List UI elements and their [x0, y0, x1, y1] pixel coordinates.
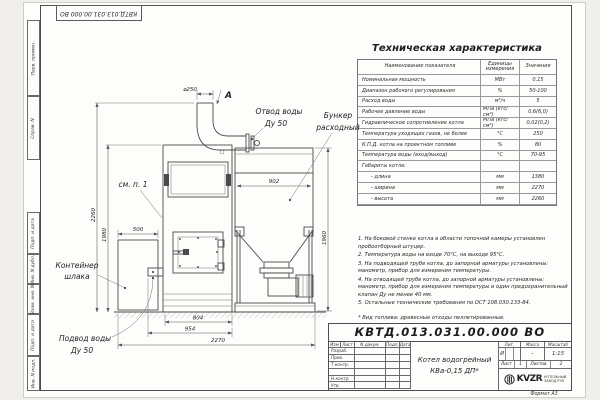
panel-inner	[171, 165, 225, 194]
slag-container-leader	[98, 275, 125, 288]
valve-flange	[246, 134, 249, 152]
tech-row-unit: МВт	[481, 75, 520, 86]
bunker-leader	[290, 133, 332, 200]
doc-title: Котел водогрейный КВа-0,15 ДП*	[411, 342, 499, 390]
tech-row-name: К.П.Д. котла на проектном топливе	[358, 140, 481, 151]
frame-cell-podp-data-1: Подп. и дата	[27, 212, 40, 254]
note-item: 4. На отводящей трубе котла, до запорной…	[358, 277, 572, 300]
frame-cell-inv-dubl: Инв. N дубл.	[27, 254, 40, 284]
listov-value: 2	[551, 361, 571, 368]
leader-dot	[152, 277, 154, 279]
dim-2270: 2270	[211, 338, 225, 344]
tb-row-utv: Утв.	[329, 382, 355, 389]
feeder-motor	[296, 275, 313, 297]
lit-cell-empty	[506, 348, 513, 360]
tech-row-value: 1380	[520, 172, 556, 183]
frame-label: Подп. и дата	[31, 320, 36, 351]
view-arrow	[217, 90, 221, 104]
dim-804: 804	[193, 316, 204, 322]
tech-row-name: Температура уходящих газов, не более	[358, 129, 481, 140]
tech-table: Наименование показателя Единицы измерени…	[357, 59, 557, 206]
dim-902: 902	[269, 179, 280, 185]
tech-row-unit: МПа (кгс/см²)	[481, 118, 520, 129]
kvzr-emblem-icon	[504, 374, 515, 385]
company-name-line2: ЗАВОД РЭП	[544, 379, 566, 383]
tech-row-value: 2260	[520, 194, 556, 205]
tb-cell	[386, 362, 400, 369]
bunker-frame-legs	[237, 230, 312, 303]
boiler-drawing: ⌀250 А 2260 1980 500 902 1960 804 954 22…	[40, 80, 370, 372]
bunker-label-1: Бункер	[324, 111, 353, 120]
dim-954: 954	[185, 327, 196, 333]
hopper-cone-right	[290, 230, 313, 262]
tech-row-value: 250	[520, 129, 556, 140]
chimney-inner	[213, 103, 246, 136]
view-a-label: А	[224, 91, 232, 101]
tech-row-value: 2270	[520, 183, 556, 194]
tech-row-name: Расход воды	[358, 97, 481, 108]
frame-label: Взам. инв. N	[31, 284, 36, 313]
tech-row-unit: МПа (кгс/см²)	[481, 107, 520, 118]
tb-cell	[386, 355, 400, 362]
frame-label: Инв. N дубл.	[31, 254, 36, 283]
dim-1960: 1960	[322, 231, 328, 245]
doc-title-line2: КВа-0,15 ДП*	[430, 367, 479, 375]
tb-cell	[400, 369, 411, 376]
tech-row-name: Температура воды (вход/выход)	[358, 151, 481, 162]
tech-row-value	[520, 161, 556, 172]
lit-value: И	[499, 348, 506, 360]
tech-row-name: Рабочее давление воды	[358, 107, 481, 118]
tech-row-unit	[481, 161, 520, 172]
tech-table-title: Техническая характеристика	[357, 43, 557, 54]
frame-cell-sprav-n: Справ. N	[27, 96, 40, 160]
water-jacket-panel	[168, 162, 228, 197]
door-handle-grip	[183, 249, 189, 255]
tech-row-unit: мм	[481, 194, 520, 205]
panel-clamp-left	[164, 174, 169, 186]
feeder-flange-2	[260, 268, 293, 273]
tech-row-unit: мм	[481, 172, 520, 183]
tech-row-unit: %	[481, 86, 520, 97]
tech-row-name: - высота	[358, 194, 481, 205]
leader-dot	[124, 287, 126, 289]
water-inlet-fitting	[148, 268, 163, 276]
vent-fitting	[220, 150, 224, 154]
list-label: Лист	[499, 361, 515, 368]
tech-row-value: 50-100	[520, 86, 556, 97]
bunker-label-2: расходный	[315, 123, 360, 132]
tb-cell	[355, 376, 386, 383]
title-block-right: Лит. Масса Масштаб И - 1:15 Лист 1	[499, 342, 571, 390]
frame-label: Инв. N подл.	[31, 359, 36, 389]
fitting-bolt	[152, 271, 154, 273]
tech-row-name: Габариты котла:	[358, 161, 481, 172]
frame-cell-vzam-inv: Взам. инв. N	[27, 284, 40, 314]
technical-notes: 1. На боковой стенке котла в области топ…	[358, 236, 572, 323]
feeder-flange-1	[264, 262, 289, 268]
tech-row-name: Гидравлическое сопротивление котла	[358, 118, 481, 129]
tb-cell	[400, 348, 411, 355]
tech-row-name: Диапазон рабочего регулирования	[358, 86, 481, 97]
frame-label: Справ. N	[31, 118, 36, 139]
tech-col-header: Единицы измерения	[481, 60, 520, 75]
tech-row-name: Номинальная мощность	[358, 75, 481, 86]
tech-row-unit: °С	[481, 151, 520, 162]
tech-col-header: Значения	[520, 60, 556, 75]
see-note-label: см. п. 1	[119, 180, 148, 189]
massa-value: -	[521, 348, 545, 360]
base-channel	[235, 303, 315, 312]
tech-row-value: 80	[520, 140, 556, 151]
tb-cell	[355, 382, 386, 389]
fuel-note: * Вид топлива: древесные отходы пеллетир…	[358, 315, 572, 323]
tech-row-value: 5	[520, 97, 556, 108]
tb-row-nkontr: Н.контр.	[329, 376, 355, 383]
tech-row-value: 0,6(6,0)	[520, 107, 556, 118]
tb-cell	[400, 382, 411, 389]
tb-cell	[400, 362, 411, 369]
water-outlet-label-1: Отвод воды	[256, 107, 303, 116]
chimney-outer	[197, 103, 246, 150]
drawing-sheet-page: Перв. примен. Справ. N Подп. и дата Инв.…	[0, 0, 600, 400]
tb-cell	[386, 376, 400, 383]
dim-500: 500	[133, 227, 144, 233]
valve-handwheel	[254, 140, 259, 145]
lit-cells: И	[499, 348, 521, 360]
tech-row-name: - ширина	[358, 183, 481, 194]
company-logo-row: KVZR КОТЕЛЬНЫЙ ЗАВОД РЭП	[499, 369, 571, 390]
doc-number-rotated-box: КВТД.013.031.00.000 ВО	[56, 5, 142, 21]
doc-number-rotated: КВТД.013.031.00.000 ВО	[60, 10, 137, 17]
screw-conveyor-housing	[268, 278, 298, 296]
note-item: 5. Остальные технические требования по О…	[358, 300, 572, 308]
frame-cell-perv-primen: Перв. примен.	[27, 20, 40, 96]
see-note-leader	[140, 190, 162, 218]
tech-row-value: 0,02(0,2)	[520, 118, 556, 129]
tech-row-unit: м³/ч	[481, 97, 520, 108]
dim-2260: 2260	[91, 208, 97, 222]
tech-row-name: - длина	[358, 172, 481, 183]
note-item: 1. На боковой стенке котла в области топ…	[358, 236, 572, 251]
tech-row-value: 70-95	[520, 151, 556, 162]
frame-label: Перв. примен.	[31, 41, 36, 75]
dim-250: ⌀250	[183, 87, 197, 93]
doc-title-line1: Котел водогрейный	[418, 356, 492, 364]
slag-container	[118, 240, 158, 310]
tech-row-unit: °С	[481, 129, 520, 140]
water-outlet-leader	[252, 128, 263, 139]
tb-cell	[400, 355, 411, 362]
panel-clamp-right	[226, 174, 231, 186]
kvzr-logo-text: KVZR	[517, 374, 542, 384]
tech-col-header: Наименование показателя	[358, 60, 481, 75]
note-item: 2. Температура воды на входе 70°С, на вы…	[358, 252, 572, 260]
masshtab-value: 1:15	[545, 348, 571, 360]
hopper-cone-left	[235, 230, 263, 262]
frame-cell-podp-data-2: Подп. и дата	[27, 314, 40, 356]
water-outlet-label-2: Ду 50	[264, 119, 287, 128]
slag-container-label-1: Контейнер	[56, 261, 99, 270]
tb-cell	[386, 369, 400, 376]
leader-dot	[289, 199, 291, 201]
lit-cell-empty	[514, 348, 520, 360]
frame-label: Подп. и дата	[31, 218, 36, 249]
tech-row-value: 0,15	[520, 75, 556, 86]
water-inlet-label-1: Подвод воды	[59, 334, 111, 343]
feeder-flange-3	[264, 273, 289, 278]
slag-container-label-2: шлака	[64, 272, 90, 281]
tb-cell	[386, 348, 400, 355]
company-name: КОТЕЛЬНЫЙ ЗАВОД РЭП	[544, 375, 566, 384]
dim-1980: 1980	[102, 228, 108, 242]
water-inlet-label-2: Ду 50	[70, 346, 93, 355]
tb-cell	[386, 382, 400, 389]
tb-cell	[400, 376, 411, 383]
frame-cell-inv-podl: Инв. N подл.	[27, 356, 40, 391]
leader-dot	[251, 138, 253, 140]
boiler-body	[163, 145, 232, 312]
format-label: Формат А3	[514, 392, 574, 397]
ground-hatch	[114, 313, 326, 319]
note-item: 3. На подводящей трубе котла, до запорно…	[358, 261, 572, 276]
list-value: 1	[515, 361, 527, 368]
tech-row-unit: %	[481, 140, 520, 151]
tech-row-unit: мм	[481, 183, 520, 194]
listov-label: Листов	[527, 361, 551, 368]
